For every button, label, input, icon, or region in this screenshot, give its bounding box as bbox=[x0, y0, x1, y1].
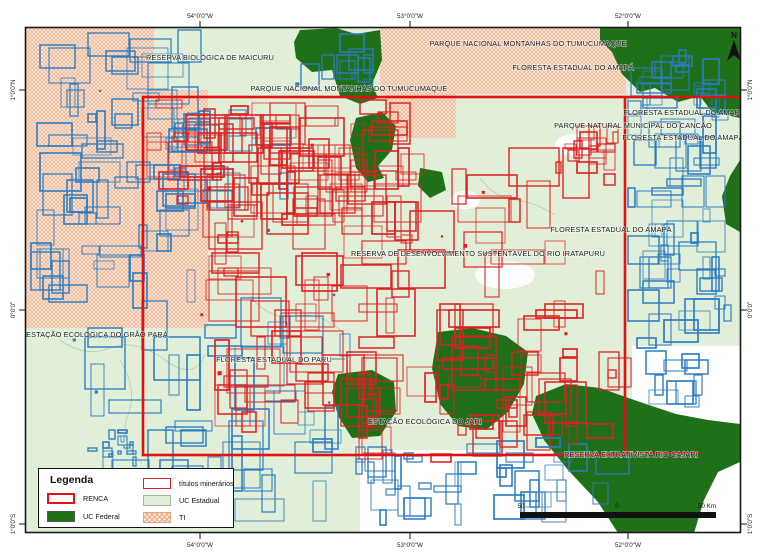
coord-label: 1°0'0"S bbox=[746, 514, 754, 535]
area-label: FLORESTA ESTADUAL DO PARU bbox=[216, 355, 332, 364]
coord-label: 1°0'0"N bbox=[9, 79, 17, 100]
titulos-swatch-icon bbox=[143, 478, 171, 489]
area-label: RESERVA EXTRATIVISTA RIO CAJARI bbox=[564, 450, 698, 459]
ti-area bbox=[96, 296, 138, 318]
scale-label-right: 50 Km bbox=[698, 503, 716, 510]
legend-item-renca: RENCA bbox=[47, 492, 108, 504]
coord-label: 54°0'0"W bbox=[187, 541, 213, 549]
area-label: RESERVA BIOLÓGICA DE MAICURU bbox=[146, 53, 274, 62]
claim-dot bbox=[441, 235, 443, 237]
area-label: ESTAÇÃO ECOLÓGICA DO JARI bbox=[368, 417, 482, 426]
legend-item-label: RENCA bbox=[83, 494, 108, 503]
claim-dot bbox=[564, 332, 567, 335]
claim-dot bbox=[200, 313, 203, 316]
claim-dot bbox=[241, 220, 243, 222]
area-label: PARQUE NACIONAL MONTANHAS DO TUMUCUMAQUE bbox=[251, 84, 448, 93]
area-label: FLORESTA ESTADUAL DO AMAPÁ bbox=[622, 133, 743, 142]
scale-label-left: 50 bbox=[517, 503, 525, 510]
coord-label: 0°0'0" bbox=[9, 302, 17, 318]
claim-dot bbox=[95, 390, 98, 393]
north-arrow-label: N bbox=[731, 31, 737, 40]
coord-label: 1°0'0"N bbox=[746, 79, 754, 100]
claim-dot bbox=[482, 191, 485, 194]
uc-estadual-swatch-icon bbox=[143, 495, 171, 506]
map-layers: RESERVA BIOLÓGICA DE MAICURU PARQUE NACI… bbox=[26, 28, 745, 533]
ti-area bbox=[154, 90, 208, 328]
renca-swatch-icon bbox=[47, 493, 75, 504]
claim-dot bbox=[99, 90, 101, 92]
legend-item-uc-estadual: UC Estadual bbox=[143, 494, 219, 506]
claim-dot bbox=[333, 294, 336, 297]
ti-area bbox=[386, 94, 456, 138]
legend-item-label: UC Federal bbox=[83, 512, 120, 521]
scale-label-mid: 0 bbox=[615, 503, 619, 510]
scale-bar-rect bbox=[520, 512, 716, 518]
legend-item-ti: TI bbox=[143, 511, 185, 523]
claim-dot bbox=[263, 127, 265, 129]
legend-item-label: títulos minerários bbox=[179, 479, 234, 488]
coord-label: 52°0'0"W bbox=[615, 541, 641, 549]
area-label: FLORESTA ESTADUAL DO AMAPÁ bbox=[623, 108, 744, 117]
area-label: FLORESTA ESTADUAL DO AMAPÁ bbox=[512, 63, 633, 72]
map-page: RESERVA BIOLÓGICA DE MAICURU PARQUE NACI… bbox=[0, 0, 768, 559]
claim-dot bbox=[327, 273, 330, 276]
legend-item-label: UC Estadual bbox=[179, 496, 219, 505]
coord-label: 1°0'0"S bbox=[9, 514, 17, 535]
claim-dot bbox=[311, 144, 314, 147]
area-label: ESTAÇÃO ECOLÓGICA DO GRÃO PARÁ bbox=[26, 330, 168, 339]
coord-label: 53°0'0"W bbox=[397, 12, 423, 20]
coord-label: 52°0'0"W bbox=[615, 12, 641, 20]
area-label: PARQUE NACIONAL MONTANHAS DO TUMUCUMAQUE bbox=[430, 39, 627, 48]
legend-item-uc-federal: UC Federal bbox=[47, 510, 120, 522]
legend-title: Legenda bbox=[50, 474, 93, 486]
area-label: PARQUE NATURAL MUNICIPAL DO CANCÃO bbox=[554, 121, 712, 130]
coord-label: 53°0'0"W bbox=[397, 541, 423, 549]
clearing bbox=[450, 191, 480, 209]
legend-item-titulos: títulos minerários bbox=[143, 477, 234, 489]
area-label: FLORESTA ESTADUAL DO AMAPÁ bbox=[550, 225, 671, 234]
area-label: RESERVA DE DESENVOLVIMENTO SUSTENTÁVEL D… bbox=[351, 249, 605, 258]
coord-label: 54°0'0"W bbox=[187, 12, 213, 20]
claim-dot bbox=[463, 244, 467, 248]
clearing bbox=[475, 261, 535, 289]
coord-label: 0°0'0" bbox=[746, 302, 754, 318]
legend-item-label: TI bbox=[179, 513, 185, 522]
ti-swatch-icon bbox=[143, 512, 171, 523]
claim-dot bbox=[218, 371, 222, 375]
uc-federal-swatch-icon bbox=[47, 511, 75, 522]
claim-dot bbox=[207, 186, 211, 190]
claim-dot bbox=[328, 402, 330, 404]
legend: Legenda RENCA UC Federal títulos minerár… bbox=[38, 468, 234, 528]
